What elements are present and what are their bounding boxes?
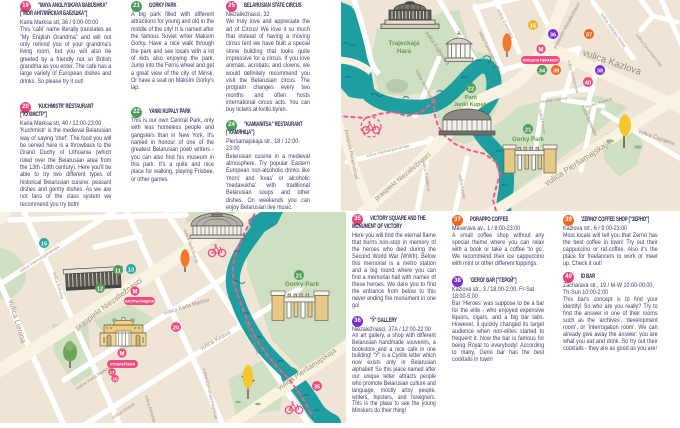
svg-text:Hara: Hara (397, 48, 412, 55)
svg-text:M: M (133, 290, 138, 296)
svg-text:КАСТРЫЧНІЦКАЯ: КАСТРЫЧНІЦКАЯ (125, 300, 154, 304)
svg-text:38: 38 (597, 69, 603, 75)
svg-text:Gorky Park: Gorky Park (285, 281, 320, 288)
svg-text:36: 36 (550, 33, 556, 39)
svg-text:17: 17 (109, 370, 115, 375)
svg-text:13: 13 (128, 268, 134, 274)
svg-text:КУПАЛАЎСКАЯ: КУПАЛАЎСКАЯ (110, 363, 135, 367)
svg-text:20: 20 (173, 326, 179, 332)
svg-text:21: 21 (525, 128, 532, 134)
svg-text:Gorky Park: Gorky Park (512, 137, 545, 143)
svg-text:Trajeckaja: Trajeckaja (389, 40, 420, 47)
svg-text:11: 11 (115, 269, 121, 275)
svg-text:Janki Kupaly: Janki Kupaly (454, 102, 489, 108)
svg-text:15: 15 (530, 24, 536, 30)
svg-text:34: 34 (539, 69, 546, 75)
svg-text:15: 15 (41, 242, 47, 248)
svg-text:ПЛОШЧА ПЕРАМОГІ: ПЛОШЧА ПЕРАМОГІ (522, 59, 558, 63)
svg-text:39: 39 (553, 69, 559, 75)
svg-text:M: M (539, 48, 544, 54)
svg-text:19: 19 (112, 377, 118, 382)
svg-text:M: M (120, 352, 125, 358)
svg-text:22: 22 (468, 87, 474, 93)
svg-text:Park: Park (465, 95, 478, 101)
svg-text:35: 35 (314, 385, 320, 391)
svg-text:21: 21 (296, 274, 303, 280)
svg-text:40: 40 (585, 81, 591, 87)
svg-text:37: 37 (586, 33, 592, 39)
svg-text:12: 12 (97, 287, 103, 293)
